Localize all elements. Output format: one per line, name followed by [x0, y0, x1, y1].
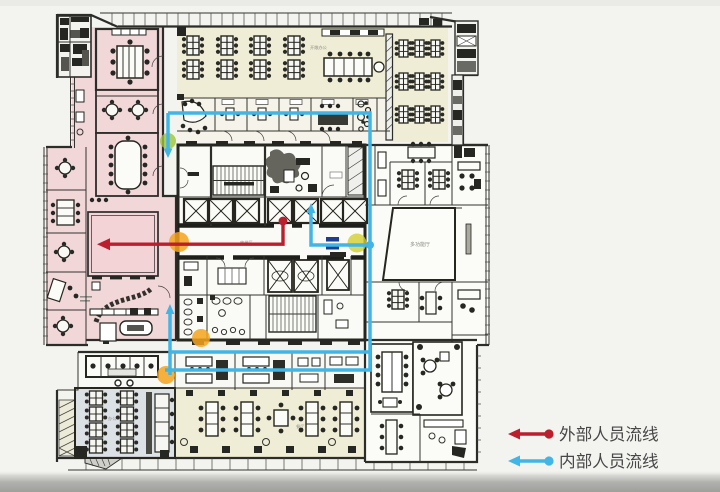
svg-text:内部人员流线: 内部人员流线: [559, 452, 659, 471]
svg-text:开敞办公: 开敞办公: [310, 44, 328, 51]
svg-text:外部人员流线: 外部人员流线: [559, 425, 659, 444]
svg-text:多功能厅: 多功能厅: [410, 241, 430, 248]
svg-text:办公: 办公: [108, 415, 117, 422]
